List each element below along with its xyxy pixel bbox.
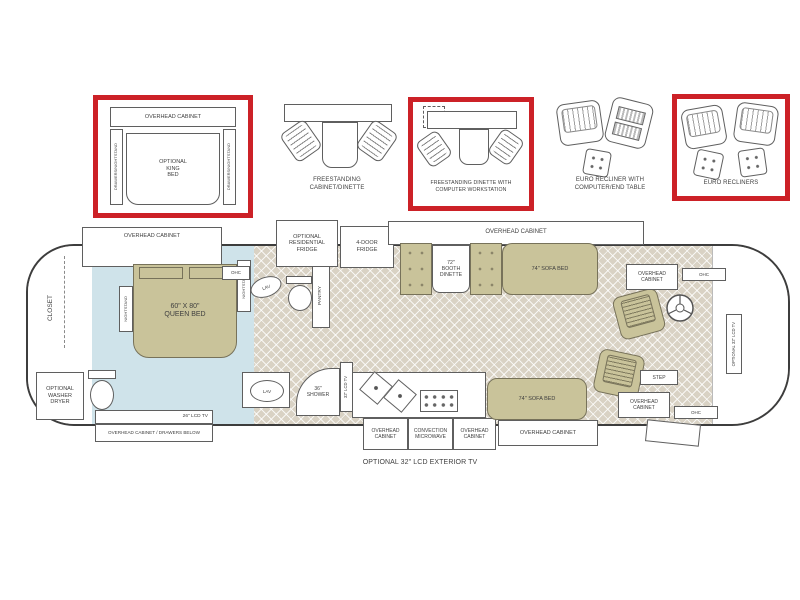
king-bed-drawers-nightstand-right: DRAWERS/NIGHTSTAND bbox=[223, 129, 236, 205]
freestanding-dinette-workstation-label: FREESTANDING DINETTE WITH COMPUTER WORKS… bbox=[413, 180, 529, 193]
lav-sink: LAV bbox=[250, 380, 284, 402]
tv-26: 26" LCD TV bbox=[95, 410, 213, 424]
pillow-icon bbox=[139, 267, 183, 279]
entry-step: STEP bbox=[640, 370, 678, 385]
bedroom-overhead-cabinet-slide: OVERHEAD CABINET bbox=[82, 227, 222, 267]
nightstand-left: NIGHTSTAND bbox=[119, 286, 133, 332]
sofa-bed-top: 74" SOFA BED bbox=[502, 243, 598, 295]
pantry-label: PANTRY bbox=[318, 286, 323, 305]
optional-king-bed: OPTIONAL KING BED bbox=[126, 133, 220, 205]
toilet-tank-icon bbox=[88, 370, 116, 379]
optional-residential-fridge: OPTIONAL RESIDENTIAL FRIDGE bbox=[276, 220, 338, 267]
rv-floorplan-page: { "colors": { "highlight_red": "#cc2127"… bbox=[0, 0, 800, 600]
closet: CLOSET bbox=[44, 266, 58, 350]
euro-recliners-label: EURO RECLINERS bbox=[677, 180, 785, 188]
option-dinette-workstation-highlight-box: FREESTANDING DINETTE WITH COMPUTER WORKS… bbox=[408, 97, 534, 211]
dinette-chair-icon bbox=[355, 118, 399, 163]
workstation-cabinet-icon bbox=[427, 111, 517, 129]
cab-overhead-cabinet-top: OVERHEAD CABINET bbox=[626, 264, 678, 290]
convection-microwave: CONVECTION MICROWAVE bbox=[408, 418, 453, 450]
euro-recliner-icon bbox=[732, 101, 779, 146]
tv-32-bath-label: 32" LCD TV bbox=[344, 376, 349, 398]
ottoman-icon bbox=[692, 148, 724, 180]
cab-ohc-top: OHC bbox=[682, 268, 726, 281]
drawers-nightstand-label: DRAWERS/NIGHTSTAND bbox=[114, 143, 118, 190]
cab-overhead-cabinet-bottom: OVERHEAD CABINET bbox=[618, 392, 670, 418]
computer-screen-icon bbox=[612, 121, 642, 140]
overhead-cabinet-drawers-below: OVERHEAD CABINET / DRAWERS BELOW bbox=[95, 424, 213, 442]
cooktop-icon bbox=[420, 390, 458, 412]
galley-overhead-cabinet-slide: OVERHEAD CABINET bbox=[388, 221, 644, 245]
euro-recliner-icon bbox=[680, 104, 728, 151]
toilet-icon bbox=[90, 380, 114, 410]
booth-bench-icon bbox=[400, 243, 432, 295]
closet-rod bbox=[64, 256, 65, 348]
entry-door bbox=[645, 419, 701, 447]
drawers-nightstand-label: DRAWERS/NIGHTSTAND bbox=[227, 143, 231, 190]
four-door-fridge: 4-DOOR FRIDGE bbox=[340, 226, 394, 268]
euro-recliner-table-label: EURO RECLINER WITH COMPUTER/END TABLE bbox=[545, 177, 675, 192]
steering-wheel-icon bbox=[664, 292, 696, 324]
euro-recliner-icon bbox=[555, 99, 604, 147]
cab-ohc-bottom: OHC bbox=[674, 406, 718, 419]
pantry: PANTRY bbox=[312, 264, 330, 328]
ottoman-icon bbox=[582, 148, 612, 178]
end-table-icon bbox=[603, 96, 655, 151]
booth-dinette-table: 72" BOOTH DINETTE bbox=[432, 245, 470, 293]
option-euro-recliners-highlight-box: EURO RECLINERS bbox=[672, 94, 790, 201]
toilet-tank-icon bbox=[286, 276, 312, 284]
sofa-overhead-cabinet: OVERHEAD CABINET bbox=[498, 420, 598, 446]
dinette-chair-icon bbox=[279, 118, 323, 163]
workstation-table-icon bbox=[459, 129, 489, 165]
optional-washer-dryer: OPTIONAL WASHER DRYER bbox=[36, 372, 84, 420]
exterior-tv-caption: OPTIONAL 32" LCD EXTERIOR TV bbox=[320, 459, 520, 468]
kitchen-overhead-cabinet-2: OVERHEAD CABINET bbox=[453, 418, 496, 450]
dinette-cabinet-icon bbox=[284, 104, 392, 122]
king-bed-drawers-nightstand-left: DRAWERS/NIGHTSTAND bbox=[110, 129, 123, 205]
optional-tv-32: OPTIONAL 32" LCD TV bbox=[726, 314, 742, 374]
dinette-table-icon bbox=[322, 122, 358, 168]
closet-label: CLOSET bbox=[47, 295, 54, 321]
kitchen-overhead-cabinet-1: OVERHEAD CABINET bbox=[363, 418, 408, 450]
king-bed-overhead-cabinet: OVERHEAD CABINET bbox=[110, 107, 236, 127]
dinette-chair-icon bbox=[487, 127, 526, 166]
dinette-chair-icon bbox=[415, 129, 454, 168]
sofa-bed-bottom: 74" SOFA BED bbox=[487, 378, 587, 420]
ottoman-icon bbox=[737, 147, 767, 177]
nightstand-label: NIGHTSTAND bbox=[124, 296, 128, 322]
bath-ohc: OHC bbox=[222, 266, 250, 280]
booth-bench-icon bbox=[470, 243, 502, 295]
freestanding-cabinet-dinette-label: FREESTANDING CABINET/DINETTE bbox=[272, 177, 402, 192]
toilet-icon bbox=[288, 285, 312, 311]
optional-tv-32-label: OPTIONAL 32" LCD TV bbox=[732, 322, 737, 366]
option-king-bed-highlight-box: OVERHEAD CABINET DRAWERS/NIGHTSTAND DRAW… bbox=[93, 95, 253, 218]
